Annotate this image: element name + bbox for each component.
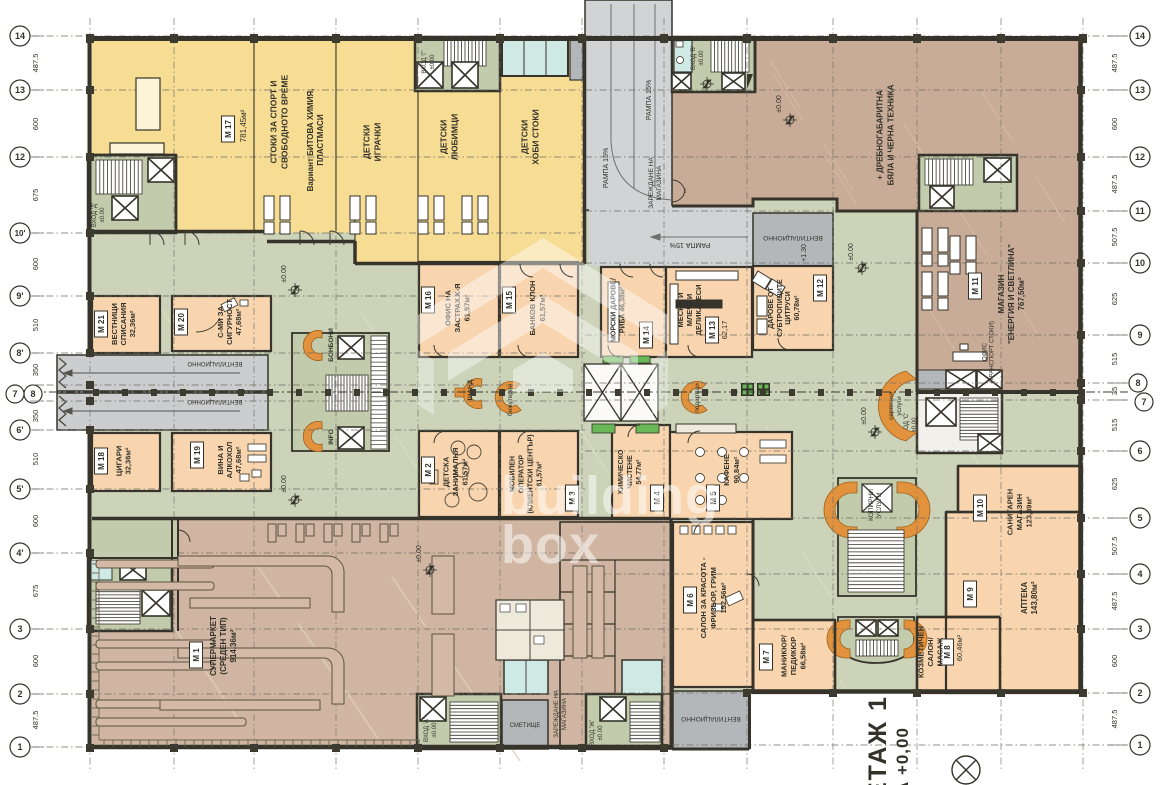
- svg-text:±0.00: ±0.00: [100, 207, 106, 223]
- svg-text:М 9: М 9: [966, 587, 975, 601]
- svg-text:7: 7: [1141, 397, 1146, 407]
- svg-text:487.5: 487.5: [31, 54, 40, 73]
- svg-text:123,39м²: 123,39м²: [1025, 496, 1034, 527]
- svg-text:ВХОД 'А': ВХОД 'А': [424, 718, 430, 742]
- svg-text:ВХОД 'Г': ВХОД 'Г': [422, 50, 428, 73]
- svg-text:ВЕНТИЛАЦИОННО: ВЕНТИЛАЦИОННО: [763, 234, 823, 241]
- svg-text:2: 2: [1137, 688, 1142, 698]
- svg-text:32,36м²: 32,36м²: [124, 447, 133, 474]
- svg-text:ЦИТРУСИ: ЦИТРУСИ: [785, 291, 792, 324]
- svg-text:±0.00: ±0.00: [848, 243, 855, 261]
- svg-text:М 1: М 1: [192, 648, 201, 662]
- svg-text:13: 13: [15, 85, 25, 95]
- svg-text:МАСАЖ: МАСАЖ: [936, 637, 945, 666]
- svg-text:625: 625: [1110, 478, 1119, 491]
- svg-text:ДЕТСКИ: ДЕТСКИ: [362, 125, 372, 159]
- svg-text:9': 9': [16, 291, 23, 301]
- svg-text:ЦИГАРИ: ЦИГАРИ: [115, 446, 124, 476]
- svg-text:152,56м²: 152,56м²: [719, 582, 728, 613]
- svg-text:+ ДРЕБНОГАБАРИТНА: + ДРЕБНОГАБАРИТНА: [876, 90, 885, 180]
- svg-text:+1.30: +1.30: [801, 244, 808, 262]
- svg-text:487.5: 487.5: [1110, 175, 1119, 194]
- svg-text:СТОКИ ЗА СПОРТ И: СТОКИ ЗА СПОРТ И: [269, 80, 279, 163]
- svg-text:675: 675: [31, 585, 40, 598]
- svg-text:сервизни: сервизни: [888, 392, 895, 420]
- svg-text:М 19: М 19: [193, 446, 202, 464]
- svg-text:ДЕЛИКАТЕСИ: ДЕЛИКАТЕСИ: [694, 284, 703, 335]
- svg-text:767,50м²: 767,50м²: [1017, 277, 1026, 310]
- svg-text:БОНБОНИ: БОНБОНИ: [328, 328, 335, 362]
- svg-text:12: 12: [15, 152, 25, 162]
- svg-text:М 17: М 17: [224, 120, 233, 138]
- svg-text:8: 8: [1135, 378, 1140, 388]
- svg-text:14: 14: [1135, 31, 1145, 41]
- svg-text:ПЕДИКЮР: ПЕДИКЮР: [789, 637, 798, 675]
- svg-text:14: 14: [15, 31, 25, 41]
- svg-text:М 15: М 15: [505, 291, 514, 309]
- svg-text:ВХОД 'Ж': ВХОД 'Ж': [590, 720, 596, 746]
- svg-text:МЛЕЧНИ: МЛЕЧНИ: [685, 294, 694, 327]
- svg-text:±0.00: ±0.00: [281, 475, 288, 493]
- svg-text:МАГАЗИН: МАГАЗИН: [997, 274, 1006, 313]
- svg-text:ЗАРЕЖДАНЕ НА: ЗАРЕЖДАНЕ НА: [648, 157, 655, 209]
- svg-text:М 7: М 7: [762, 650, 771, 664]
- svg-text:±0.00: ±0.00: [281, 265, 288, 283]
- svg-text:507.5: 507.5: [1110, 228, 1119, 247]
- svg-text:ФРИЗЬОР, ГРИМ: ФРИЗЬОР, ГРИМ: [709, 567, 718, 629]
- svg-text:ВХОД 'Д': ВХОД 'Д': [92, 203, 98, 227]
- svg-text:781,45м²: 781,45м²: [239, 109, 248, 142]
- svg-text:61,57м²: 61,57м²: [461, 458, 470, 485]
- svg-text:510: 510: [31, 453, 40, 466]
- svg-text:МАГАЗИНА: МАГАЗИНА: [656, 165, 663, 200]
- svg-text:487.5: 487.5: [1110, 592, 1119, 611]
- svg-text:600: 600: [31, 515, 40, 528]
- svg-text:АЛКОХОЛ: АЛКОХОЛ: [225, 442, 234, 479]
- svg-text:(ТРАНСПОРТ СТОКИ): (ТРАНСПОРТ СТОКИ): [990, 321, 996, 383]
- svg-text:675: 675: [31, 189, 40, 202]
- svg-text:5: 5: [1137, 513, 1142, 523]
- svg-text:подаръци: подаръци: [694, 383, 701, 413]
- svg-text:143,80м²: 143,80м²: [1030, 581, 1039, 614]
- svg-text:487.5: 487.5: [1110, 54, 1119, 73]
- svg-text:ЛЮБИМЦИ: ЛЮБИМЦИ: [450, 114, 460, 160]
- svg-text:62,17: 62,17: [720, 321, 729, 340]
- svg-text:ВИНА И: ВИНА И: [216, 445, 225, 474]
- svg-text:350: 350: [31, 410, 40, 423]
- svg-text:ДЕТСКА: ДЕТСКА: [442, 456, 451, 487]
- svg-text:±0.00: ±0.00: [699, 50, 705, 66]
- svg-text:ЗАНИМАЛНЯ: ЗАНИМАЛНЯ: [451, 448, 460, 497]
- svg-text:625: 625: [1110, 293, 1119, 306]
- svg-text:±0.00: ±0.00: [432, 722, 438, 738]
- svg-text:(СРЕДЕН ТИП): (СРЕДЕН ТИП): [219, 617, 228, 675]
- svg-text:ИГРАЧКИ: ИГРАЧКИ: [373, 123, 383, 162]
- svg-text:ДЕТСКИ: ДЕТСКИ: [439, 120, 449, 154]
- svg-text:1: 1: [1137, 740, 1142, 750]
- svg-text:ВЕНТИЛАЦИОННО: ВЕНТИЛАЦИОННО: [681, 715, 741, 722]
- svg-text:8': 8': [16, 348, 23, 358]
- svg-text:510: 510: [31, 319, 40, 332]
- svg-text:INFO: INFO: [328, 429, 335, 445]
- svg-text:11: 11: [1135, 206, 1145, 216]
- svg-text:12: 12: [1135, 152, 1145, 162]
- svg-text:М 6: М 6: [686, 593, 695, 607]
- svg-text:600: 600: [31, 118, 40, 131]
- svg-text:Вариант БИТОВА ХИМИЯ,: Вариант БИТОВА ХИМИЯ,: [306, 89, 315, 192]
- svg-text:10: 10: [1135, 258, 1145, 268]
- svg-text:13: 13: [1135, 85, 1145, 95]
- svg-text:60,46м²: 60,46м²: [955, 634, 964, 661]
- svg-text:600: 600: [31, 258, 40, 271]
- svg-text:32,36м²: 32,36м²: [128, 310, 137, 337]
- svg-text:487.5: 487.5: [31, 711, 40, 730]
- svg-text:СУПЕРМАРКЕТ: СУПЕРМАРКЕТ: [209, 616, 218, 676]
- svg-text:РАМПА 15%: РАМПА 15%: [670, 241, 710, 248]
- svg-text:ПЛАСТМАСИ: ПЛАСТМАСИ: [316, 114, 325, 165]
- svg-text:САЛОН ЗА КРАСОТА -: САЛОН ЗА КРАСОТА -: [699, 557, 708, 638]
- svg-text:СПИСАНИЯ: СПИСАНИЯ: [119, 302, 128, 345]
- svg-text:±0.00: ±0.00: [861, 407, 868, 425]
- svg-text:КОПИРНИ: КОПИРНИ: [868, 489, 875, 521]
- svg-text:47,68м²: 47,68м²: [234, 308, 243, 335]
- svg-text:±0.00: ±0.00: [598, 725, 604, 741]
- svg-text:350: 350: [31, 364, 40, 377]
- svg-text:ДЕТСКИ: ДЕТСКИ: [520, 120, 530, 154]
- svg-text:60,78м²: 60,78м²: [794, 295, 801, 321]
- svg-text:САНИТАРЕН: САНИТАРЕН: [1006, 489, 1015, 535]
- svg-text:"ЕНЕРГИЯ И СВЕТЛИНА": "ЕНЕРГИЯ И СВЕТЛИНА": [1007, 244, 1016, 344]
- svg-text:3: 3: [17, 624, 22, 634]
- svg-text:ВЕНТИЛАЦИОННО: ВЕНТИЛАЦИОННО: [187, 360, 242, 366]
- svg-text:7: 7: [12, 389, 17, 399]
- svg-text:2: 2: [17, 689, 22, 699]
- svg-text:СВОБОДНОТО ВРЕМЕ: СВОБОДНОТО ВРЕМЕ: [280, 75, 290, 170]
- svg-text:КАФЕНЕ: КАФЕНЕ: [722, 454, 731, 486]
- svg-text:КОЗМЕТИЧЕН: КОЗМЕТИЧЕН: [917, 626, 926, 678]
- svg-text:±0.00: ±0.00: [430, 54, 436, 70]
- svg-text:1: 1: [17, 742, 22, 752]
- svg-text:6': 6': [16, 425, 23, 435]
- svg-text:М 2: М 2: [424, 463, 433, 477]
- svg-text:ДАРОВЕ ОТ: ДАРОВЕ ОТ: [768, 287, 775, 329]
- svg-text:ОФИС: ОФИС: [983, 342, 989, 361]
- svg-text:ХОБИ СТОКИ: ХОБИ СТОКИ: [531, 109, 541, 164]
- svg-text:БЯЛА И ЧЕРНА ТЕХНИКА: БЯЛА И ЧЕРНА ТЕХНИКА: [887, 84, 896, 185]
- svg-text:МЕСНИ И: МЕСНИ И: [676, 293, 685, 328]
- svg-text:МАГАЗИН: МАГАЗИН: [1015, 494, 1024, 530]
- svg-text:ЗАРЕЖДАНЕ НА: ЗАРЕЖДАНЕ НА: [554, 690, 560, 738]
- svg-text:90,84м²: 90,84м²: [732, 456, 741, 483]
- svg-text:услуги: услуги: [896, 396, 903, 416]
- svg-text:СИГУРНОСТ: СИГУРНОСТ: [225, 299, 234, 345]
- svg-text:М 10: М 10: [976, 499, 985, 517]
- svg-text:8: 8: [30, 389, 35, 399]
- svg-text:515: 515: [1110, 353, 1119, 366]
- svg-text:35: 35: [1110, 387, 1119, 395]
- svg-text:47,68м²: 47,68м²: [234, 446, 243, 473]
- svg-text:РАМПА 15%: РАМПА 15%: [646, 80, 653, 120]
- svg-text:487.5: 487.5: [1110, 710, 1119, 729]
- svg-text:5': 5': [16, 484, 23, 494]
- svg-text:±0.00: ±0.00: [416, 545, 423, 563]
- svg-text:600: 600: [31, 655, 40, 668]
- svg-text:±0.00: ±0.00: [776, 95, 783, 113]
- svg-text:бижутерия: бижутерия: [506, 383, 514, 416]
- svg-text:box: box: [501, 515, 600, 575]
- svg-text:М 12: М 12: [816, 279, 825, 297]
- svg-text:С-МИ ЗА: С-МИ ЗА: [216, 306, 225, 338]
- svg-text:10': 10': [15, 229, 26, 238]
- svg-text:М 16: М 16: [424, 291, 433, 309]
- svg-text:4': 4': [16, 548, 23, 558]
- svg-text:66,58м²: 66,58м²: [799, 642, 808, 669]
- svg-text:МАГАЗИНА: МАГАЗИНА: [562, 698, 568, 730]
- svg-text:УСЛУГИ: УСЛУГИ: [876, 492, 883, 518]
- svg-text:600: 600: [1110, 118, 1119, 131]
- svg-text:СМЕТИЩЕ: СМЕТИЩЕ: [510, 723, 541, 729]
- svg-text:КОТА +0,00: КОТА +0,00: [893, 727, 912, 785]
- svg-text:4: 4: [1137, 569, 1142, 579]
- svg-text:ЕТАЖ 1: ЕТАЖ 1: [864, 695, 892, 785]
- svg-text:СУБТРОПИЦИТЕ: СУБТРОПИЦИТЕ: [777, 279, 784, 337]
- svg-text:507.5: 507.5: [1110, 537, 1119, 556]
- svg-text:ВХОД 'В': ВХОД 'В': [691, 46, 697, 70]
- svg-text:МАНИКЮР/: МАНИКЮР/: [780, 634, 789, 677]
- svg-text:М 11: М 11: [971, 277, 980, 295]
- svg-text:М 13: М 13: [708, 321, 717, 339]
- svg-text:ВЕСТНИЦИ: ВЕСТНИЦИ: [110, 303, 119, 345]
- svg-text:600: 600: [1110, 655, 1119, 668]
- svg-text:М 18: М 18: [97, 452, 106, 470]
- svg-text:9: 9: [1137, 330, 1142, 340]
- svg-text:САЛОН/: САЛОН/: [926, 636, 935, 666]
- svg-text:АПТЕКА: АПТЕКА: [1020, 582, 1029, 615]
- svg-text:3: 3: [1137, 624, 1142, 634]
- svg-text:914,36м²: 914,36м²: [229, 629, 238, 662]
- svg-text:М 21: М 21: [97, 315, 106, 333]
- svg-text:М 20: М 20: [177, 313, 186, 331]
- svg-text:6: 6: [1137, 446, 1142, 456]
- svg-text:РАМПА 15%: РАМПА 15%: [603, 148, 610, 188]
- svg-text:515: 515: [1110, 419, 1119, 432]
